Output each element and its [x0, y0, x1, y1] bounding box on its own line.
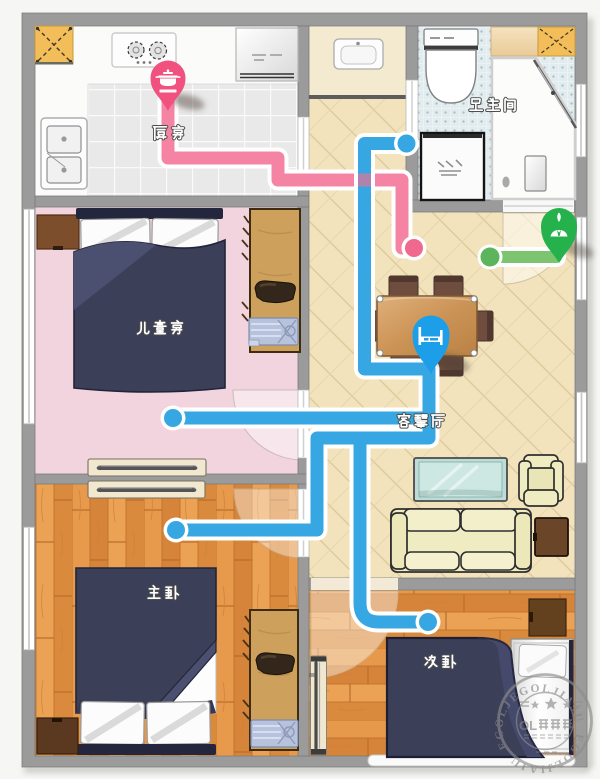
- svg-text:OL: OL: [519, 718, 537, 733]
